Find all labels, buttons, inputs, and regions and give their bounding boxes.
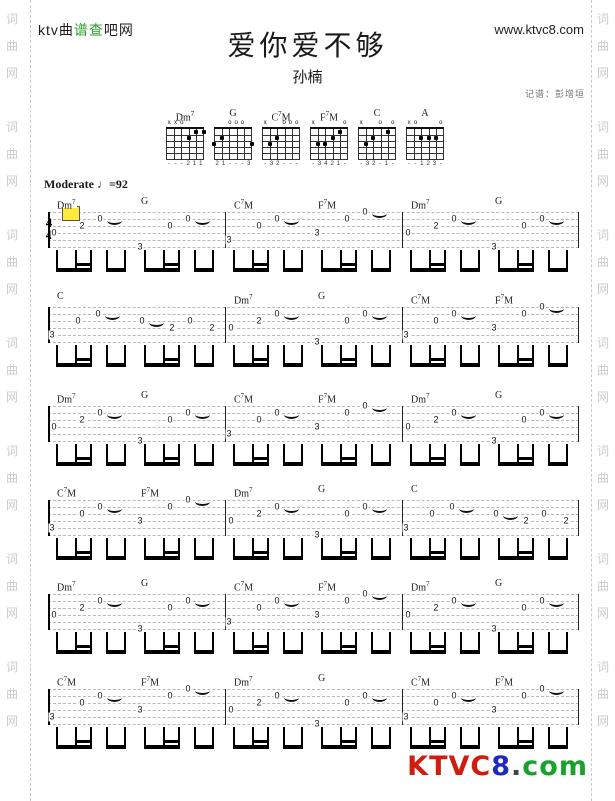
- beam-bar: [410, 363, 446, 367]
- beam-group: [498, 538, 534, 560]
- beam-bar: [321, 268, 357, 272]
- watermark-group: 词曲网: [595, 114, 611, 195]
- fret-line: [166, 147, 204, 148]
- beam-group: [56, 345, 92, 367]
- sheet-music-page: 词曲网词曲网词曲网词曲网词曲网词曲网词曲网 词曲网词曲网词曲网词曲网词曲网词曲网…: [0, 0, 615, 801]
- chord-diagram-name: Dm7: [163, 108, 207, 120]
- chord-symbol: Dm7: [56, 390, 77, 402]
- beam-bar: [321, 363, 357, 367]
- tempo-marking: Moderate ♩=92: [44, 177, 128, 192]
- tab-fret-number: 0: [273, 692, 280, 701]
- beam-group: [548, 727, 568, 749]
- transcriber-credit: 记谱：彭增垣: [525, 87, 585, 100]
- watermark-char: 词: [595, 222, 611, 249]
- beam-bar: [283, 268, 303, 272]
- watermark-group: 词曲网: [4, 546, 20, 627]
- beam-bar-16th: [517, 740, 534, 743]
- beam-group: [233, 345, 269, 367]
- beam-bar: [233, 745, 269, 749]
- watermark-char: 网: [4, 384, 20, 411]
- beam-group: [321, 345, 357, 367]
- chord-diagram: Gooo21---3: [211, 108, 255, 168]
- beam-bar: [106, 745, 126, 749]
- fret-line: [262, 147, 300, 148]
- tab-string-line: [48, 247, 579, 248]
- tab-string-line: [48, 406, 579, 407]
- tab-fret-number: 2: [208, 324, 215, 333]
- watermark-char: 曲: [4, 141, 20, 168]
- beam-group: [194, 632, 214, 654]
- tie-arc: [284, 504, 299, 513]
- beam-bar: [371, 268, 391, 272]
- tab-fret-number: 0: [538, 409, 545, 418]
- fretboard-grid: [406, 127, 444, 160]
- beam-group: [548, 632, 568, 654]
- beam-group: [498, 444, 534, 466]
- beam-bar: [283, 650, 303, 654]
- beam-group: [548, 345, 568, 367]
- beam-bar: [233, 462, 269, 466]
- chord-symbol: Dm7: [410, 390, 431, 402]
- watermark-char: 网: [595, 384, 611, 411]
- tab-fret-number: 0: [404, 423, 411, 432]
- chord-name-text: A: [421, 108, 428, 119]
- finger-dot: [194, 130, 198, 134]
- chord-symbol: F7M: [140, 484, 160, 496]
- fret-string-line: [395, 129, 396, 159]
- chord-name-text: Dm: [234, 295, 249, 306]
- chord-name-text: C: [57, 291, 64, 302]
- chord-name-text: M: [327, 394, 336, 405]
- finger-dot: [364, 142, 368, 146]
- chord-name-text: Dm: [234, 677, 249, 688]
- beam-bar: [498, 268, 534, 272]
- barline: [402, 406, 403, 442]
- chord-symbol: C7M: [56, 673, 77, 685]
- chord-name-text: Dm: [57, 394, 72, 405]
- watermark-char: 词: [4, 438, 20, 465]
- tab-fret-number: 3: [225, 618, 232, 627]
- string-marker: o: [438, 120, 444, 127]
- fret-string-line: [189, 129, 190, 159]
- beam-group: [283, 632, 303, 654]
- chord-symbol: C7M: [56, 484, 77, 496]
- watermark-group: 词曲网: [595, 222, 611, 303]
- fret-line: [406, 153, 444, 154]
- beam-group: [233, 250, 269, 272]
- beam-bar-16th: [252, 740, 269, 743]
- tab-fret-number: 3: [136, 625, 143, 634]
- chord-symbol: F7M: [494, 673, 514, 685]
- beam-group: [460, 444, 480, 466]
- beam-bar-16th: [340, 740, 357, 743]
- beam-bar-16th: [75, 740, 92, 743]
- beam-bar: [460, 363, 480, 367]
- beam-group: [283, 444, 303, 466]
- tie-arc: [503, 511, 518, 520]
- chord-symbol: C7M: [410, 291, 431, 303]
- fret-string-line: [181, 129, 182, 159]
- beam-bar: [460, 556, 480, 560]
- beam-group: [106, 345, 126, 367]
- beam-bar: [144, 462, 180, 466]
- chord-name-text: Dm: [411, 582, 426, 593]
- tab-fret-number: 0: [255, 416, 262, 425]
- barline: [578, 307, 579, 343]
- quarter-note-icon: ♩: [97, 177, 109, 191]
- beam-group: [548, 538, 568, 560]
- watermark-char: 网: [595, 600, 611, 627]
- tab-fret-number: 3: [490, 437, 497, 446]
- watermark-char: 网: [4, 168, 20, 195]
- beam-group: [498, 632, 534, 654]
- beam-bar-16th: [517, 358, 534, 361]
- fingering-row: -32---: [262, 160, 300, 168]
- beam-bar: [144, 268, 180, 272]
- beam-group: [410, 345, 446, 367]
- chord-name-text: G: [318, 673, 325, 684]
- chord-name-text: Dm: [57, 582, 72, 593]
- chord-symbol: F7M: [494, 291, 514, 303]
- fret-string-line: [237, 129, 238, 159]
- chord-diagram: Cxoo-32-1-: [355, 108, 399, 168]
- fret-string-line: [299, 129, 300, 159]
- beam-group: [106, 538, 126, 560]
- chord-diagram-name: A: [403, 108, 447, 120]
- tab-string-line: [48, 413, 579, 414]
- tab-fret-number: 0: [343, 317, 350, 326]
- tab-fret-number: 0: [361, 503, 368, 512]
- beam-bar-16th: [163, 263, 180, 266]
- finger-dot: [434, 136, 438, 140]
- beam-bar: [106, 556, 126, 560]
- tab-fret-number: 0: [184, 597, 191, 606]
- beam-bar-16th: [163, 551, 180, 554]
- beam-bar: [410, 650, 446, 654]
- fret-string-line: [381, 129, 382, 159]
- chord-name-text: M: [244, 200, 253, 211]
- chord-name-text: C: [57, 488, 64, 499]
- chord-name-text: C: [411, 295, 418, 306]
- fret-string-line: [222, 129, 223, 159]
- tab-string-line: [48, 441, 579, 442]
- beam-group: [460, 632, 480, 654]
- chord-symbol: Dm7: [56, 578, 77, 590]
- beam-group: [371, 538, 391, 560]
- chord-symbol: C7M: [410, 673, 431, 685]
- tab-fret-number: 0: [78, 699, 85, 708]
- fret-string-line: [414, 129, 415, 159]
- fret-string-line: [292, 129, 293, 159]
- beam-group: [460, 538, 480, 560]
- fret-line: [262, 135, 300, 136]
- chord-name-text: M: [327, 200, 336, 211]
- tab-fret-number: 0: [520, 222, 527, 231]
- chord-name-text: G: [141, 196, 148, 207]
- chord-symbol: G: [140, 390, 149, 402]
- beam-group: [56, 632, 92, 654]
- tie-arc: [372, 403, 387, 412]
- tie-arc: [195, 686, 210, 695]
- beam-bar: [371, 462, 391, 466]
- beam-group: [548, 444, 568, 466]
- tab-fret-number: 0: [78, 510, 85, 519]
- watermark-char: 曲: [4, 357, 20, 384]
- tie-arc: [284, 598, 299, 607]
- chord-symbol: G: [494, 196, 503, 208]
- watermark-char: 词: [4, 654, 20, 681]
- tab-fret-number: 0: [184, 496, 191, 505]
- tab-fret-number: 0: [432, 317, 439, 326]
- chord-symbol: G: [317, 673, 326, 685]
- chord-name-text: C: [411, 677, 418, 688]
- beam-group: [194, 250, 214, 272]
- chord-diagram: F7Mxo-3421-: [307, 108, 351, 168]
- tab-fret-number: 0: [361, 590, 368, 599]
- beam-bar: [56, 745, 92, 749]
- fretboard-grid: [310, 127, 348, 160]
- watermark-char: 词: [4, 114, 20, 141]
- chord-name-text: C: [234, 394, 241, 405]
- beam-bar: [233, 268, 269, 272]
- beam-group: [144, 345, 180, 367]
- beam-bar: [371, 556, 391, 560]
- chord-symbol: C7M: [233, 390, 254, 402]
- chord-diagram: Axoo--123-: [403, 108, 447, 168]
- tab-fret-number: 3: [402, 524, 409, 533]
- beam-bar: [56, 462, 92, 466]
- beam-bar: [106, 268, 126, 272]
- beam-bar-16th: [163, 645, 180, 648]
- beam-bar: [283, 556, 303, 560]
- tab-fret-number: 3: [225, 430, 232, 439]
- chord-name-text: M: [327, 582, 336, 593]
- tab-fret-number: 0: [540, 510, 547, 519]
- tie-arc: [195, 216, 210, 225]
- tab-fret-number: 0: [538, 303, 545, 312]
- finger-dot: [187, 136, 191, 140]
- tab-fret-number: 0: [227, 706, 234, 715]
- tab-fret-number: 2: [522, 517, 529, 526]
- watermark-char: 曲: [4, 573, 20, 600]
- beam-bar: [194, 462, 214, 466]
- tab-fret-number: 0: [227, 517, 234, 526]
- tab-fret-number: 2: [255, 699, 262, 708]
- beam-bar-16th: [429, 645, 446, 648]
- barline: [578, 500, 579, 536]
- chord-name-text: M: [67, 488, 76, 499]
- tab-fret-number: 0: [520, 604, 527, 613]
- fret-line: [310, 135, 348, 136]
- beam-bar-16th: [429, 457, 446, 460]
- watermark-char: 词: [595, 438, 611, 465]
- fret-line: [358, 147, 396, 148]
- beam-bar-16th: [340, 645, 357, 648]
- chord-symbol: F7M: [140, 673, 160, 685]
- tie-arc: [107, 410, 122, 419]
- tab-fret-number: 3: [313, 229, 320, 238]
- tab-fret-number: 2: [255, 510, 262, 519]
- beam-bar: [106, 462, 126, 466]
- fret-line: [214, 147, 252, 148]
- chord-name-text: C: [234, 200, 241, 211]
- watermark-group: 词曲网: [595, 438, 611, 519]
- string-markers: xxo: [166, 120, 204, 127]
- beam-group: [106, 250, 126, 272]
- tab-string-line: [48, 307, 579, 308]
- tab-fret-number: 2: [432, 222, 439, 231]
- tab-fret-number: 0: [538, 685, 545, 694]
- string-marker: o: [342, 120, 348, 127]
- beam-bar-16th: [75, 551, 92, 554]
- beam-bar: [548, 268, 568, 272]
- page-border-left: [30, 0, 31, 801]
- tab-fret-number: 0: [520, 692, 527, 701]
- beam-group: [106, 444, 126, 466]
- beam-bar: [56, 650, 92, 654]
- tab-fret-number: 0: [343, 215, 350, 224]
- footer-logo[interactable]: KTVC8.com: [407, 751, 588, 782]
- tab-fret-number: 0: [273, 503, 280, 512]
- tab-string-line: [48, 710, 579, 711]
- tab-fret-number: 0: [538, 215, 545, 224]
- chord-symbol: C7M: [233, 196, 254, 208]
- tie-arc: [549, 598, 564, 607]
- tie-arc: [372, 504, 387, 513]
- chord-name-text: G: [495, 390, 502, 401]
- tab-fret-number: 0: [184, 409, 191, 418]
- chord-name-text: M: [504, 677, 513, 688]
- tab-system: Dm7020G300C7M300F7M300Dm7020G300: [48, 390, 579, 485]
- beam-group: [498, 727, 534, 749]
- tab-fret-number: 3: [313, 338, 320, 347]
- tab-string-line: [48, 434, 579, 435]
- beam-bar-16th: [517, 551, 534, 554]
- beam-bar: [321, 745, 357, 749]
- tie-arc: [105, 311, 120, 320]
- tab-fret-number: 0: [273, 409, 280, 418]
- finger-dot: [202, 130, 206, 134]
- string-markers: xo: [310, 120, 348, 127]
- beam-group: [460, 250, 480, 272]
- finger-dot: [323, 142, 327, 146]
- beam-bar: [56, 268, 92, 272]
- tab-fret-number: 0: [96, 503, 103, 512]
- tab-fret-number: 3: [313, 720, 320, 729]
- watermark-char: 网: [4, 276, 20, 303]
- tie-arc: [107, 216, 122, 225]
- finger-dot: [386, 130, 390, 134]
- chord-symbol: C7M: [233, 578, 254, 590]
- tie-arc: [107, 598, 122, 607]
- finger-dot: [220, 136, 224, 140]
- watermark-char: 曲: [4, 465, 20, 492]
- finger-dot: [275, 136, 279, 140]
- fret-line: [166, 141, 204, 142]
- beam-bar-16th: [252, 358, 269, 361]
- beam-bar: [56, 363, 92, 367]
- fret-string-line: [262, 129, 263, 159]
- beam-bar-16th: [517, 457, 534, 460]
- tie-arc: [107, 693, 122, 702]
- tie-arc: [195, 598, 210, 607]
- beam-bar: [194, 268, 214, 272]
- tab-fret-number: 0: [186, 317, 193, 326]
- tie-arc: [107, 504, 122, 513]
- fret-line: [262, 153, 300, 154]
- tie-arc: [461, 693, 476, 702]
- fret-string-line: [421, 129, 422, 159]
- chord-name-text: G: [318, 484, 325, 495]
- string-markers: ooo: [214, 120, 252, 127]
- tab-fret-number: 0: [166, 503, 173, 512]
- beam-group: [410, 538, 446, 560]
- tab-fret-number: 0: [255, 604, 262, 613]
- beam-group: [283, 345, 303, 367]
- beam-bar: [144, 650, 180, 654]
- watermark-char: 网: [4, 492, 20, 519]
- chord-name-text: M: [244, 394, 253, 405]
- beam-bar-16th: [163, 457, 180, 460]
- beam-bar-16th: [252, 645, 269, 648]
- beam-group: [233, 632, 269, 654]
- fret-line: [358, 135, 396, 136]
- tab-fret-number: 0: [166, 416, 173, 425]
- beam-bar: [410, 745, 446, 749]
- beam-group: [56, 727, 92, 749]
- beam-group: [144, 632, 180, 654]
- chord-name-text: M: [244, 582, 253, 593]
- fret-string-line: [285, 129, 286, 159]
- fret-line: [214, 153, 252, 154]
- watermark-column-right: 词曲网词曲网词曲网词曲网词曲网词曲网词曲网: [595, 6, 611, 762]
- beam-group: [144, 727, 180, 749]
- tab-fret-number: 0: [432, 699, 439, 708]
- footer-logo-text: KTVC: [407, 751, 491, 782]
- fretboard-grid: [214, 127, 252, 160]
- tab-fret-number: 0: [273, 597, 280, 606]
- beam-group: [233, 538, 269, 560]
- tab-string-line: [48, 240, 579, 241]
- tab-fret-number: 2: [255, 317, 262, 326]
- tab-string-line: [48, 521, 579, 522]
- tab-string-line: [48, 622, 579, 623]
- chord-symbol: Dm7: [233, 484, 254, 496]
- beam-group: [106, 632, 126, 654]
- tab-string-line: [48, 507, 579, 508]
- tab-fret-number: 0: [96, 409, 103, 418]
- beam-group: [498, 345, 534, 367]
- beam-group: [460, 345, 480, 367]
- tab-fret-number: 2: [78, 604, 85, 613]
- tab-fret-number: 3: [225, 236, 232, 245]
- beam-group: [460, 727, 480, 749]
- chord-diagram-strip: Dm7xxo---211Gooo21---3C7Mxooo-32---F7Mxo…: [163, 108, 447, 168]
- watermark-char: 词: [4, 222, 20, 249]
- beam-bar: [194, 363, 214, 367]
- tab-fret-number: 2: [432, 416, 439, 425]
- tab-string-line: [48, 328, 579, 329]
- beam-group: [371, 727, 391, 749]
- finger-number: -: [390, 160, 396, 168]
- tab-string-line: [48, 689, 579, 690]
- tab-fret-number: 0: [450, 409, 457, 418]
- beam-group: [194, 345, 214, 367]
- beam-group: [144, 444, 180, 466]
- watermark-char: 曲: [595, 681, 611, 708]
- beam-group: [144, 250, 180, 272]
- watermark-char: 曲: [595, 357, 611, 384]
